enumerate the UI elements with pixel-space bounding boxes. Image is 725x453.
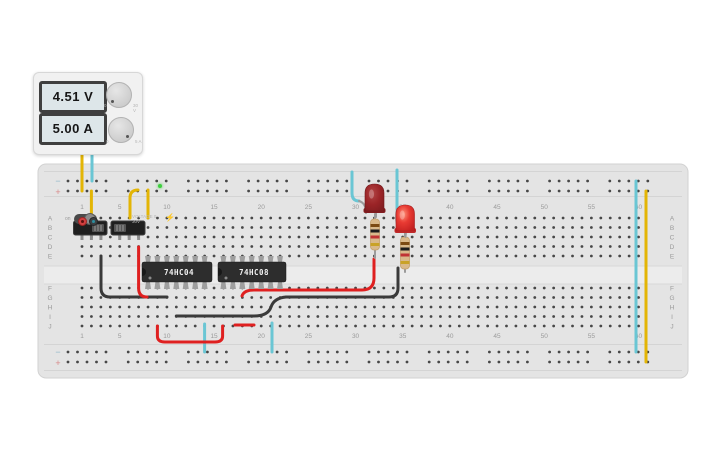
rail-hole	[187, 180, 190, 183]
rail-hole	[577, 190, 580, 193]
rail-hole	[517, 180, 520, 183]
breadboard-hole	[458, 315, 461, 318]
breadboard-hole	[515, 226, 518, 229]
breadboard-hole	[411, 296, 414, 299]
rail-hole	[307, 180, 310, 183]
rail-hole	[488, 180, 491, 183]
breadboard-hole	[458, 325, 461, 328]
breadboard-hole	[486, 296, 489, 299]
breadboard-hole	[109, 245, 112, 248]
breadboard-hole	[524, 287, 527, 290]
rail-hole	[247, 351, 250, 354]
breadboard-hole	[628, 296, 631, 299]
breadboard-hole	[213, 296, 216, 299]
column-number: 10	[163, 204, 171, 211]
breadboard-hole	[581, 315, 584, 318]
breadboard-hole	[477, 255, 480, 258]
voltage-value: 4.51 V	[53, 89, 94, 104]
rail-hole	[447, 190, 450, 193]
breadboard-hole	[599, 315, 602, 318]
rail-hole	[488, 361, 491, 364]
rail-hole	[396, 361, 399, 364]
breadboard-hole	[316, 255, 319, 258]
breadboard-hole	[213, 217, 216, 220]
breadboard-hole	[288, 306, 291, 309]
breadboard-hole	[477, 325, 480, 328]
rail-hole	[326, 361, 329, 364]
breadboard-hole	[562, 306, 565, 309]
breadboard-hole	[137, 306, 140, 309]
breadboard-hole	[458, 255, 461, 258]
rail-hole	[466, 190, 469, 193]
breadboard-hole	[590, 226, 593, 229]
rail-hole	[76, 351, 79, 354]
power-supply[interactable]: 4.51 V 5.00 A 0 30 V 0 5 A on VOLTAGE 0-…	[33, 72, 143, 155]
breadboard-hole	[581, 306, 584, 309]
breadboard-hole	[496, 315, 499, 318]
breadboard-hole	[618, 217, 621, 220]
breadboard-hole	[382, 217, 385, 220]
breadboard-hole	[316, 306, 319, 309]
breadboard-hole	[345, 217, 348, 220]
breadboard-hole	[109, 287, 112, 290]
breadboard-hole	[533, 296, 536, 299]
breadboard-hole	[241, 245, 244, 248]
rail-hole	[586, 351, 589, 354]
breadboard-hole	[533, 236, 536, 239]
breadboard-hole	[552, 226, 555, 229]
breadboard-hole	[298, 226, 301, 229]
led-2[interactable]	[395, 205, 417, 237]
breadboard-hole	[232, 236, 235, 239]
breadboard-hole	[411, 245, 414, 248]
breadboard-hole	[609, 315, 612, 318]
breadboard-hole	[543, 315, 546, 318]
rail-hole	[567, 180, 570, 183]
breadboard-hole	[533, 217, 536, 220]
breadboard-hole	[316, 315, 319, 318]
breadboard-hole	[354, 306, 357, 309]
rail-hole	[336, 361, 339, 364]
breadboard-hole	[618, 226, 621, 229]
rail-hole	[247, 180, 250, 183]
breadboard-hole	[590, 287, 593, 290]
breadboard-hole	[269, 236, 272, 239]
breadboard-hole	[175, 217, 178, 220]
breadboard-hole	[524, 217, 527, 220]
breadboard-hole	[147, 245, 150, 248]
breadboard-hole	[496, 255, 499, 258]
rail-hole	[285, 351, 288, 354]
breadboard-hole	[118, 306, 121, 309]
rail-hole	[136, 180, 139, 183]
rail-hole	[526, 361, 529, 364]
breadboard-hole	[147, 325, 150, 328]
current-value: 5.00 A	[53, 121, 94, 136]
resistor-band	[401, 254, 410, 257]
breadboard-hole	[392, 236, 395, 239]
rail-hole	[466, 351, 469, 354]
breadboard-hole	[392, 315, 395, 318]
breadboard-hole	[288, 325, 291, 328]
breadboard-hole	[279, 236, 282, 239]
rail-hole	[567, 190, 570, 193]
breadboard-hole	[524, 236, 527, 239]
rail-hole	[285, 361, 288, 364]
row-letter: J	[48, 324, 51, 331]
breadboard-hole	[562, 296, 565, 299]
breadboard-hole	[599, 255, 602, 258]
breadboard-hole	[571, 236, 574, 239]
breadboard-hole	[279, 325, 282, 328]
breadboard-hole	[213, 325, 216, 328]
rail-hole	[225, 361, 228, 364]
breadboard-hole	[505, 296, 508, 299]
breadboard-hole	[288, 236, 291, 239]
breadboard-hole	[298, 236, 301, 239]
rail-hole	[586, 361, 589, 364]
breadboard-hole	[581, 226, 584, 229]
rail-hole	[105, 190, 108, 193]
rail-hole	[507, 361, 510, 364]
column-number: 5	[118, 333, 122, 340]
breadboard-hole	[618, 245, 621, 248]
breadboard-hole	[175, 236, 178, 239]
rail-hole	[216, 190, 219, 193]
rail-hole	[336, 351, 339, 354]
breadboard-hole	[373, 287, 376, 290]
breadboard-hole	[571, 217, 574, 220]
breadboard-hole	[128, 287, 131, 290]
rail-hole	[618, 180, 621, 183]
breadboard-hole	[628, 245, 631, 248]
column-number: 50	[541, 204, 549, 211]
breadboard-hole	[90, 315, 93, 318]
rail-hole	[646, 180, 649, 183]
breadboard-hole	[118, 217, 121, 220]
rail-hole	[618, 351, 621, 354]
rail-hole	[608, 351, 611, 354]
breadboard-hole	[609, 287, 612, 290]
breadboard-hole	[250, 306, 253, 309]
rail-hole	[197, 180, 200, 183]
rail-hole	[368, 361, 371, 364]
breadboard-hole	[515, 325, 518, 328]
breadboard-hole	[194, 325, 197, 328]
rail-hole	[307, 361, 310, 364]
breadboard-hole	[250, 245, 253, 248]
power-on-label: on	[65, 216, 71, 222]
breadboard-hole	[165, 245, 168, 248]
rail-hole	[86, 361, 89, 364]
breadboard-hole	[81, 315, 84, 318]
rail-hole	[586, 190, 589, 193]
row-letter: F	[670, 286, 674, 293]
breadboard-hole	[411, 287, 414, 290]
breadboard-hole	[326, 255, 329, 258]
breadboard-hole	[109, 217, 112, 220]
breadboard-hole	[505, 236, 508, 239]
breadboard-hole	[524, 315, 527, 318]
breadboard-hole	[430, 236, 433, 239]
breadboard-hole	[175, 306, 178, 309]
breadboard-hole	[241, 236, 244, 239]
rail-hole	[498, 180, 501, 183]
rail-hole	[377, 361, 380, 364]
breadboard-hole	[232, 306, 235, 309]
breadboard-hole	[194, 217, 197, 220]
positive-terminal[interactable]	[78, 217, 87, 226]
breadboard-hole	[232, 217, 235, 220]
rail-hole	[627, 351, 630, 354]
rail-hole	[307, 190, 310, 193]
rail-hole	[456, 361, 459, 364]
breadboard-hole	[326, 325, 329, 328]
breadboard-hole	[430, 255, 433, 258]
negative-terminal[interactable]	[89, 217, 98, 226]
breadboard-hole	[203, 296, 206, 299]
breadboard-hole	[420, 315, 423, 318]
breadboard-hole	[448, 226, 451, 229]
rail-hole	[637, 361, 640, 364]
breadboard-hole	[335, 315, 338, 318]
rail-hole	[345, 351, 348, 354]
breadboard-hole	[439, 296, 442, 299]
breadboard-hole	[420, 325, 423, 328]
breadboard-hole	[571, 296, 574, 299]
column-number: 25	[305, 204, 313, 211]
rail-hole	[526, 180, 529, 183]
breadboard-hole	[477, 296, 480, 299]
voltage-knob[interactable]	[106, 82, 132, 108]
rail-hole	[447, 351, 450, 354]
column-number: 20	[258, 204, 266, 211]
rail-hole	[155, 180, 158, 183]
breadboard-hole	[618, 296, 621, 299]
row-letter: I	[671, 314, 673, 321]
rail-hole	[567, 361, 570, 364]
breadboard-hole	[222, 217, 225, 220]
breadboard-hole	[316, 325, 319, 328]
breadboard-hole	[260, 226, 263, 229]
breadboard-hole	[128, 255, 131, 258]
rail-hole	[146, 361, 149, 364]
rail-hole	[225, 190, 228, 193]
breadboard-hole	[156, 306, 159, 309]
breadboard-hole	[430, 217, 433, 220]
breadboard-hole	[430, 325, 433, 328]
breadboard-hole	[316, 245, 319, 248]
breadboard-hole	[213, 236, 216, 239]
breadboard-hole	[279, 306, 282, 309]
rail-hole	[127, 190, 130, 193]
breadboard-hole	[109, 255, 112, 258]
breadboard-hole	[269, 296, 272, 299]
rail-hole	[197, 190, 200, 193]
breadboard-hole	[430, 245, 433, 248]
breadboard-hole	[505, 226, 508, 229]
breadboard-hole	[637, 226, 640, 229]
rail-hole	[498, 351, 501, 354]
psu-fine-print: VOLTAGE 0-30V	[132, 214, 164, 224]
rail-hole	[326, 190, 329, 193]
column-number: 45	[493, 204, 501, 211]
breadboard-hole	[420, 287, 423, 290]
pin1-dot	[225, 277, 228, 280]
breadboard-hole	[467, 236, 470, 239]
column-number: 55	[588, 204, 596, 211]
column-number: 30	[352, 204, 360, 211]
breadboard-hole	[335, 236, 338, 239]
rail-hole	[507, 351, 510, 354]
breadboard-hole	[533, 226, 536, 229]
rail-hole	[266, 190, 269, 193]
breadboard-hole	[288, 226, 291, 229]
rail-hole	[165, 351, 168, 354]
lightning-icon: ⚡	[165, 213, 175, 222]
breadboard-hole	[486, 255, 489, 258]
breadboard-hole	[609, 226, 612, 229]
breadboard-hole	[241, 306, 244, 309]
breadboard-hole	[81, 325, 84, 328]
column-number: 50	[541, 333, 549, 340]
breadboard-hole	[298, 325, 301, 328]
breadboard-hole	[307, 315, 310, 318]
breadboard-hole	[420, 217, 423, 220]
rail-hole	[216, 180, 219, 183]
column-number: 15	[210, 333, 218, 340]
resistor-2[interactable]	[401, 232, 410, 272]
breadboard-hole	[477, 306, 480, 309]
resistor-band	[401, 242, 410, 245]
rail-hole	[548, 361, 551, 364]
rail-hole	[127, 180, 130, 183]
breadboard-hole	[618, 287, 621, 290]
breadboard-hole	[250, 217, 253, 220]
rail-hole	[165, 361, 168, 364]
breadboard-hole	[599, 245, 602, 248]
column-number: 35	[399, 333, 407, 340]
breadboard-hole	[269, 217, 272, 220]
breadboard-hole	[354, 315, 357, 318]
rail-hole	[206, 190, 209, 193]
rail-hole	[345, 361, 348, 364]
rail-hole	[206, 180, 209, 183]
breadboard-hole	[298, 315, 301, 318]
breadboard-hole	[562, 236, 565, 239]
breadboard-hole	[628, 255, 631, 258]
breadboard-hole	[175, 245, 178, 248]
rail-hole	[368, 351, 371, 354]
row-letter: J	[670, 324, 673, 331]
rail-hole	[127, 361, 130, 364]
rail-hole	[67, 361, 70, 364]
rail-hole	[437, 361, 440, 364]
rail-hole	[276, 180, 279, 183]
breadboard-hole	[175, 296, 178, 299]
breadboard-hole	[609, 236, 612, 239]
breadboard-hole	[213, 245, 216, 248]
breadboard-hole	[382, 315, 385, 318]
rail-hole	[206, 351, 209, 354]
breadboard-hole	[382, 236, 385, 239]
breadboard-hole	[128, 315, 131, 318]
breadboard-hole	[307, 217, 310, 220]
breadboard-hole	[637, 325, 640, 328]
rail-hole	[326, 351, 329, 354]
rail-hole	[257, 351, 260, 354]
breadboard-hole	[250, 226, 253, 229]
breadboard-hole	[99, 217, 102, 220]
breadboard-hole	[364, 306, 367, 309]
rail-hole	[447, 361, 450, 364]
breadboard-hole	[298, 255, 301, 258]
row-letter: G	[47, 295, 52, 302]
column-number: 55	[588, 333, 596, 340]
rail-hole	[285, 180, 288, 183]
breadboard-hole	[382, 226, 385, 229]
breadboard-hole	[477, 287, 480, 290]
breadboard-hole	[99, 315, 102, 318]
breadboard-hole	[260, 236, 263, 239]
resistor-band	[371, 230, 380, 233]
breadboard-hole	[260, 296, 263, 299]
rail-hole	[336, 180, 339, 183]
breadboard-hole	[194, 236, 197, 239]
breadboard-hole	[99, 245, 102, 248]
current-knob[interactable]	[108, 117, 134, 143]
breadboard-hole	[364, 315, 367, 318]
breadboard-hole	[515, 245, 518, 248]
breadboard-hole	[524, 255, 527, 258]
rail-hole	[266, 180, 269, 183]
rail-hole	[67, 351, 70, 354]
breadboard-hole	[156, 315, 159, 318]
rail-hole	[456, 180, 459, 183]
breadboard-hole	[288, 315, 291, 318]
breadboard-hole	[571, 315, 574, 318]
breadboard-hole	[458, 245, 461, 248]
breadboard-hole	[222, 226, 225, 229]
breadboard-hole	[505, 315, 508, 318]
breadboard-hole	[326, 315, 329, 318]
breadboard-hole	[335, 306, 338, 309]
breadboard-hole	[364, 217, 367, 220]
breadboard-hole	[109, 306, 112, 309]
rail-hole	[558, 351, 561, 354]
breadboard-hole	[496, 296, 499, 299]
breadboard-hole	[524, 325, 527, 328]
breadboard-hole	[628, 236, 631, 239]
rail-hole	[387, 190, 390, 193]
breadboard-hole	[430, 287, 433, 290]
breadboard-hole	[581, 236, 584, 239]
breadboard-hole	[232, 296, 235, 299]
breadboard-hole	[599, 287, 602, 290]
rail-hole	[225, 351, 228, 354]
breadboard-hole	[552, 217, 555, 220]
rail-hole	[165, 180, 168, 183]
rail-symbol: +	[55, 358, 60, 368]
breadboard-hole	[335, 255, 338, 258]
column-number: 1	[80, 333, 84, 340]
rail-hole	[428, 351, 431, 354]
breadboard-hole	[571, 245, 574, 248]
breadboard-hole	[515, 255, 518, 258]
breadboard-hole	[609, 296, 612, 299]
breadboard-hole	[99, 296, 102, 299]
breadboard-hole	[260, 325, 263, 328]
